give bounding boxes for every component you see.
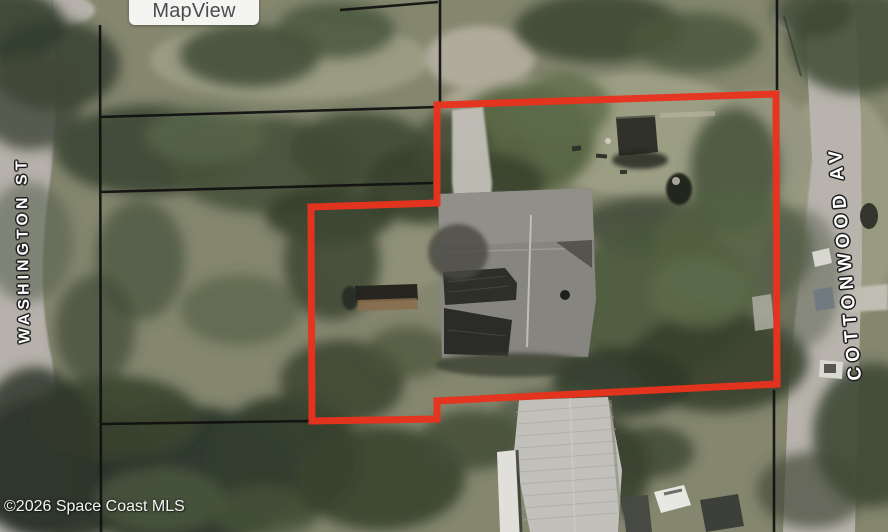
car-right-top [860, 203, 878, 229]
mapview-button[interactable]: MapView [129, 0, 259, 25]
parked-vehicle [666, 173, 692, 205]
house-roof [428, 188, 596, 377]
mapview-button-label: MapView [152, 0, 235, 23]
vehicle-dark2 [622, 495, 652, 532]
boundary-washington-frontage [100, 25, 101, 532]
mls-map-view: MapView WASHINGTON ST COTTONWOOD AV ©202… [0, 0, 888, 532]
aerial-map[interactable] [0, 0, 888, 532]
car-dark [700, 494, 744, 532]
shed-west [342, 284, 418, 311]
trailer [752, 294, 774, 331]
